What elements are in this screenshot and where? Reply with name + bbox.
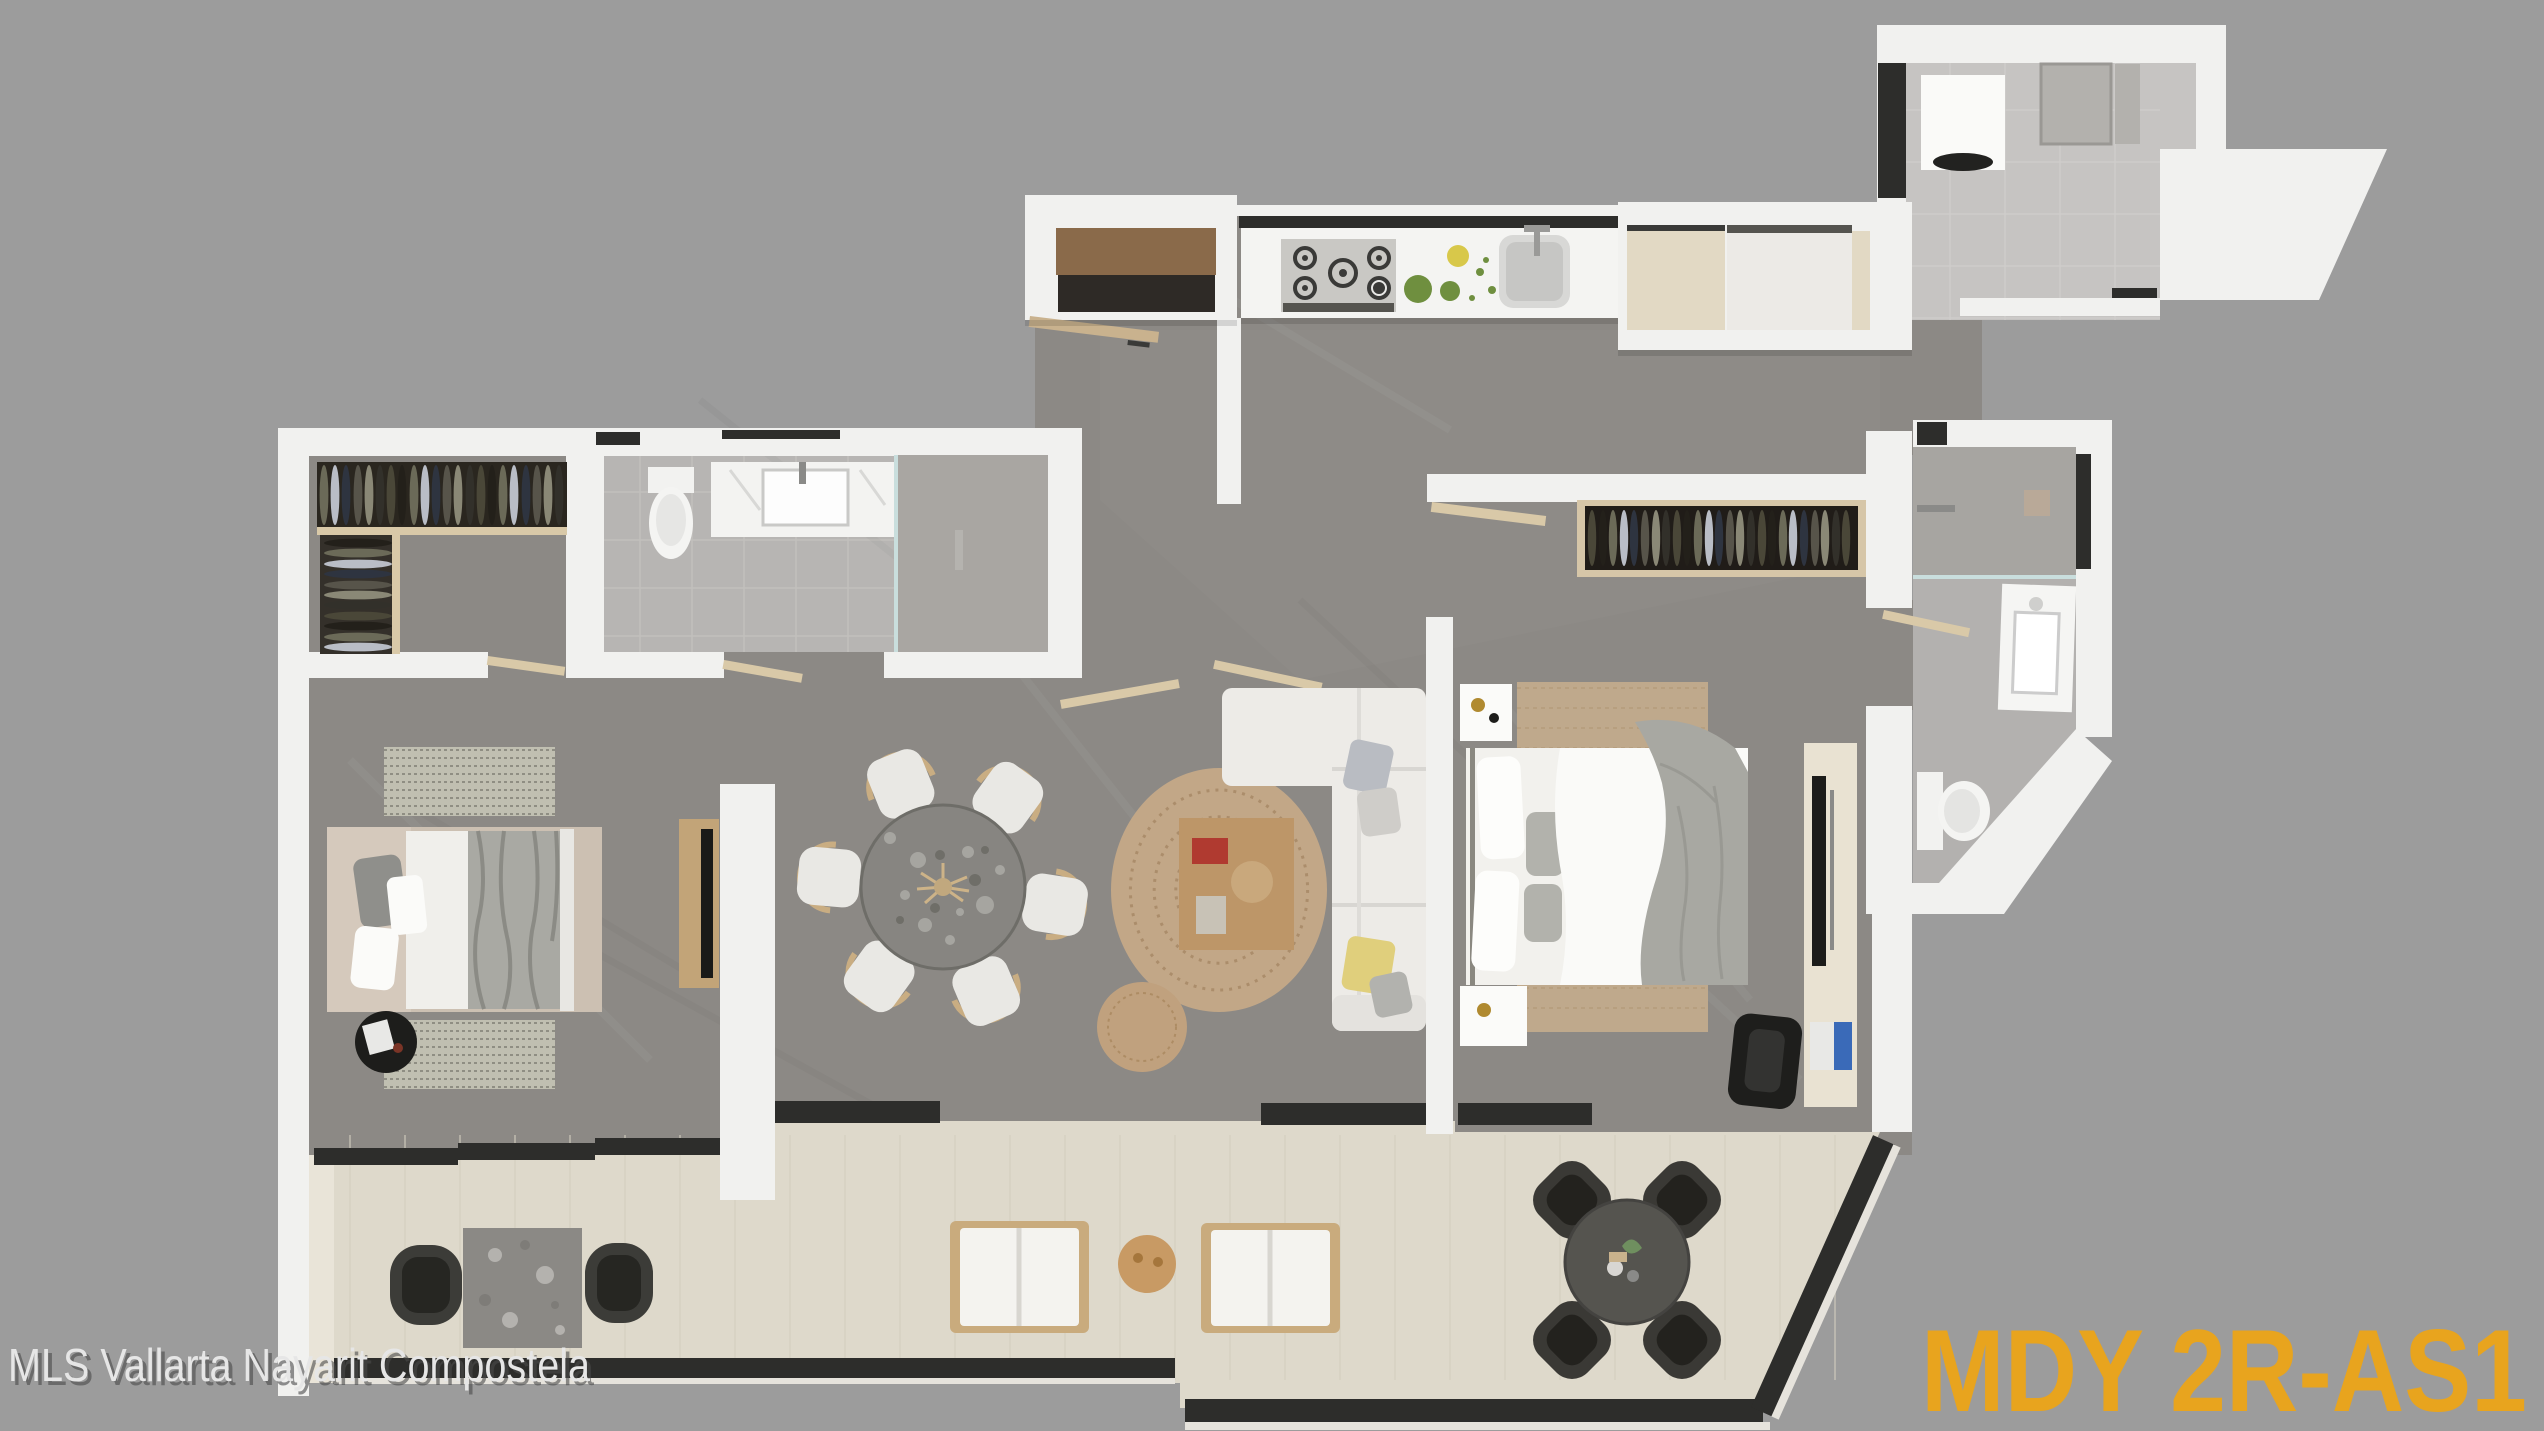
svg-text:MLS Vallarta Nayarit Compostel: MLS Vallarta Nayarit Compostela (8, 1339, 590, 1391)
svg-text:MDY 2R-AS1: MDY 2R-AS1 (1921, 1305, 2527, 1431)
